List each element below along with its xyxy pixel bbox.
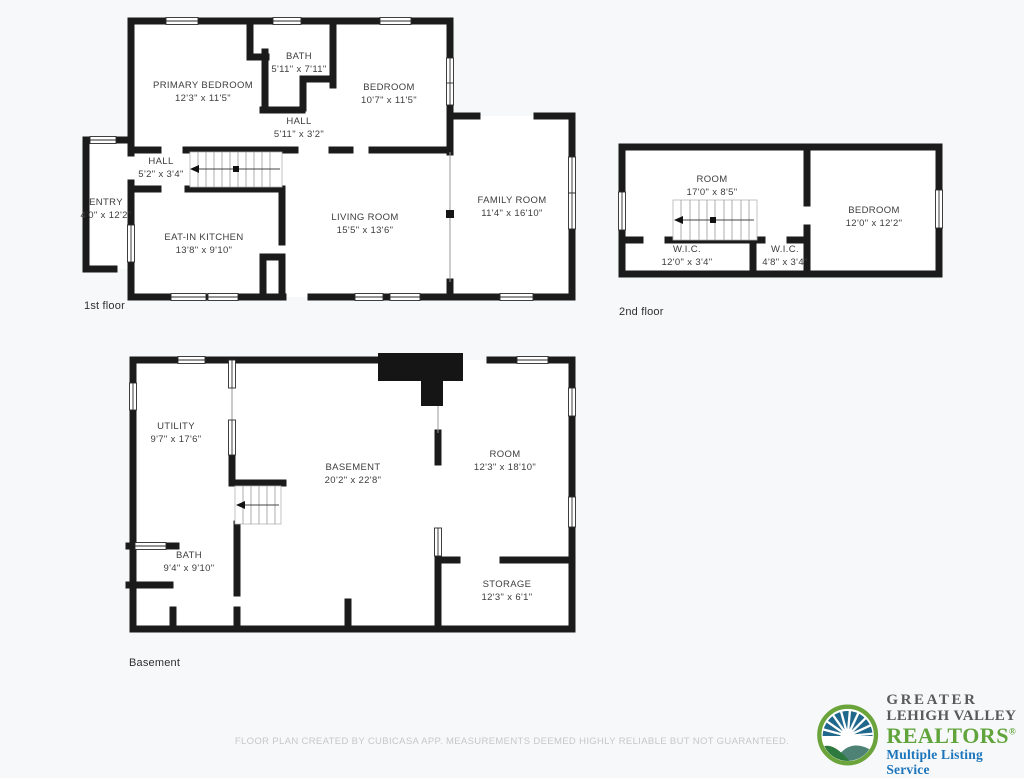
window <box>130 383 137 410</box>
logo-line-mls: Multiple Listing Service <box>886 747 1024 778</box>
floor-tag-basement: Basement <box>129 657 180 669</box>
room-label-bath-1: BATH 5'11" x 7'11" <box>271 50 326 76</box>
window <box>229 420 236 455</box>
sun-icon <box>840 729 854 743</box>
second-floor-staircase <box>673 200 757 240</box>
window <box>569 388 576 416</box>
window <box>128 225 135 262</box>
room-label-wic-right: W.I.C. 4'8" x 3'4" <box>762 243 807 269</box>
window <box>447 58 454 105</box>
room-label-primary-bedroom: PRIMARY BEDROOM 12'3" x 11'5" <box>153 79 253 105</box>
glvr-logo-text: GREATER LEHIGH VALLEY REALTORS® Multiple… <box>886 693 1024 778</box>
window <box>569 157 576 193</box>
room-label-bedroom-2f: BEDROOM 12'0" x 12'2" <box>846 204 903 230</box>
room-label-entry: ENTRY 4'0" x 12'2" <box>80 196 131 222</box>
room-label-room-bsmt: ROOM 12'3" x 18'10" <box>474 448 536 474</box>
window <box>619 192 626 230</box>
room-label-hall-lower: HALL 5'2" x 3'4" <box>138 155 183 181</box>
floor-plan-page: PRIMARY BEDROOM 12'3" x 11'5" BATH 5'11"… <box>0 0 1024 768</box>
window <box>178 357 205 364</box>
window <box>90 137 116 144</box>
room-label-bedroom-1: BEDROOM 10'7" x 11'5" <box>361 81 417 107</box>
window <box>171 294 206 301</box>
room-label-wic-left: W.I.C. 12'0" x 3'4" <box>661 243 712 269</box>
floor-fills <box>86 21 939 629</box>
room-label-basement: BASEMENT 20'2" x 22'8" <box>325 461 382 487</box>
window <box>229 360 236 388</box>
logo-line-realtors: REALTORS® <box>886 725 1024 747</box>
room-label-utility: UTILITY 9'7" x 17'6" <box>150 420 201 446</box>
window <box>936 190 943 228</box>
glvr-logo: GREATER LEHIGH VALLEY REALTORS® Multiple… <box>816 693 1024 778</box>
window <box>517 357 548 364</box>
floor-tag-first: 1st floor <box>84 300 125 312</box>
window <box>435 528 442 556</box>
room-label-storage: STORAGE 12'3" x 6'1" <box>481 578 532 604</box>
floor-plan-drawing <box>0 0 1024 768</box>
floor-tag-second: 2nd floor <box>619 306 664 318</box>
room-label-living-room: LIVING ROOM 15'5" x 13'6" <box>331 211 398 237</box>
room-label-eat-in-kitchen: EAT-IN KITCHEN 13'8" x 9'10" <box>164 231 243 257</box>
door-stop <box>446 210 454 218</box>
window <box>569 497 576 527</box>
basement-staircase <box>235 486 281 524</box>
window <box>500 294 533 301</box>
window <box>569 193 576 229</box>
window <box>380 18 411 25</box>
window <box>166 18 198 25</box>
window <box>135 543 166 550</box>
window <box>273 18 301 25</box>
logo-line-greater: GREATER <box>886 693 1024 709</box>
first-floor-staircase <box>190 152 282 187</box>
glvr-sunrise-icon <box>816 702 879 768</box>
room-label-family-room: FAMILY ROOM 11'4" x 16'10" <box>478 194 547 220</box>
window <box>390 294 420 301</box>
room-label-hall-upper: HALL 5'11" x 3'2" <box>274 115 324 141</box>
room-label-bath-bsmt: BATH 9'4" x 9'10" <box>163 549 214 575</box>
room-label-room-2f: ROOM 17'0" x 8'5" <box>686 173 737 199</box>
window <box>355 294 383 301</box>
window <box>208 294 238 301</box>
